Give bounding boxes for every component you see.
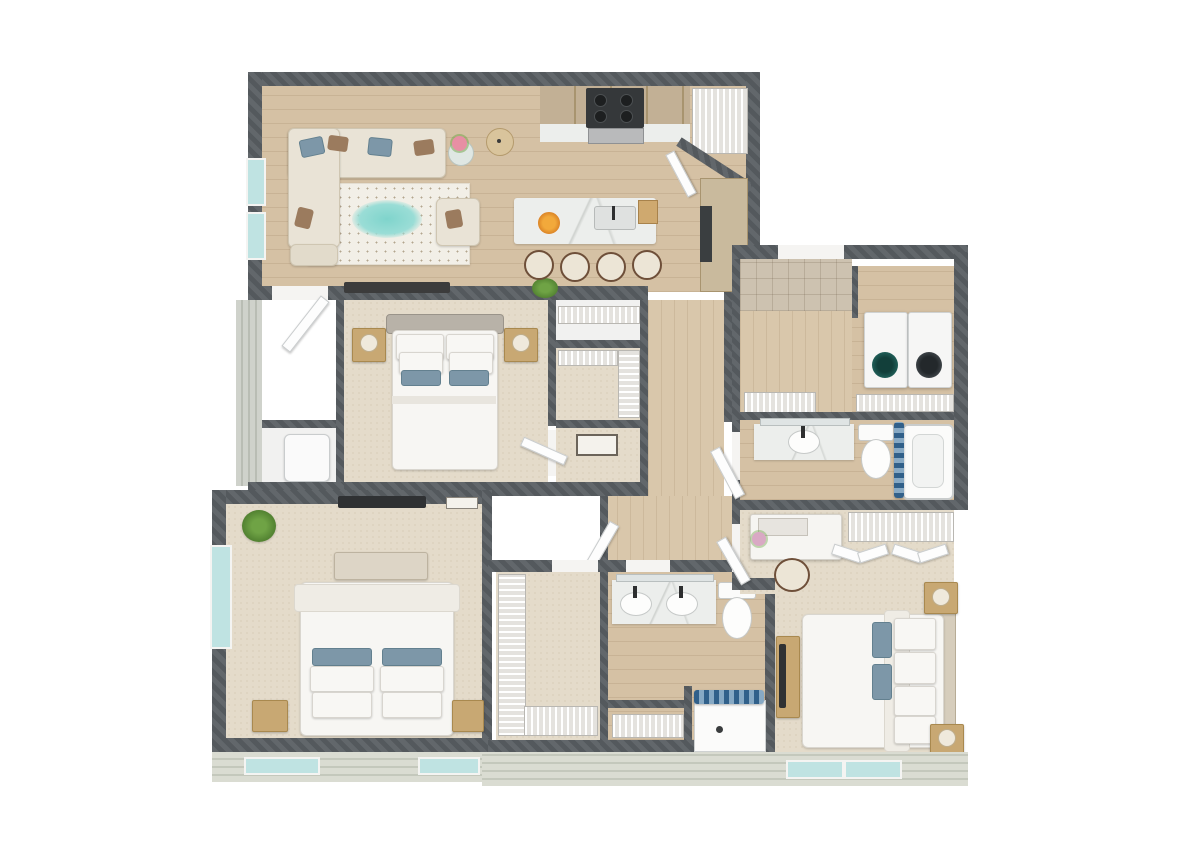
grocery-bag <box>638 200 658 224</box>
wall <box>262 420 336 428</box>
entry-floor <box>262 300 336 422</box>
burner <box>620 94 633 107</box>
wall <box>248 72 760 86</box>
floor-lamp-finial <box>497 139 501 143</box>
table-lamp <box>360 334 378 352</box>
table-lamp <box>512 334 530 352</box>
wire-shelf <box>558 350 618 366</box>
water-heater <box>284 434 330 482</box>
table-lamp <box>932 588 950 606</box>
vanity-flowers <box>752 532 766 546</box>
brown-pillow <box>327 135 349 153</box>
vanity-mirrors <box>616 574 714 582</box>
hall-linen-shelf <box>744 392 816 414</box>
wire-shelf <box>618 350 640 418</box>
blue-accent-pillow <box>449 370 489 386</box>
bar-stool <box>596 252 626 282</box>
closet-wire-shelf <box>848 512 954 542</box>
armchair-pillow <box>445 209 464 230</box>
burner <box>594 110 607 123</box>
potted-plant <box>242 510 276 542</box>
wall-art <box>576 434 618 456</box>
flower-vase-pink <box>452 136 467 151</box>
refrigerator-front <box>700 206 712 262</box>
faucet <box>679 586 683 598</box>
wire-shelf <box>558 306 640 324</box>
walk-in-shower <box>694 700 766 752</box>
window <box>844 760 902 779</box>
pillow <box>310 666 374 692</box>
bath-linen-shelf <box>612 714 684 738</box>
dryer-door <box>916 352 942 378</box>
laundry-wire-shelf <box>856 394 954 412</box>
dresser-tv <box>779 644 786 708</box>
bathtub-basin <box>912 434 944 488</box>
pillow <box>894 686 936 716</box>
pillow <box>312 692 372 718</box>
range-cooktop <box>586 88 644 128</box>
primary-bed-bench <box>334 552 428 580</box>
wall <box>608 700 686 708</box>
faucet <box>633 586 637 598</box>
media-console <box>344 282 450 293</box>
wall-mounted-tv <box>338 496 426 508</box>
blue-accent-pillow <box>312 648 372 666</box>
blue-accent-pillow <box>872 664 892 700</box>
window-tall <box>210 545 232 649</box>
wall <box>684 686 692 752</box>
window <box>786 760 844 779</box>
sofa-armrest <box>290 244 338 266</box>
wall <box>556 420 640 428</box>
wire-shelf <box>524 706 598 736</box>
entry-hall-floor <box>740 259 852 311</box>
island-sink <box>594 206 636 230</box>
entry-hall-doorway <box>778 245 844 259</box>
burner <box>620 110 633 123</box>
potted-plant <box>532 278 558 298</box>
table-lamp <box>938 729 956 747</box>
island-faucet <box>612 206 615 220</box>
window <box>246 158 266 206</box>
bathroom2-faucet <box>801 426 805 438</box>
bar-stool <box>632 250 662 280</box>
shower-curtain <box>694 690 764 704</box>
pillow <box>894 618 936 650</box>
window <box>246 212 266 260</box>
wall <box>954 252 968 508</box>
bar-stool <box>560 252 590 282</box>
window <box>418 757 480 775</box>
toilet-bowl <box>722 597 752 639</box>
pantry-wire-shelving <box>692 88 748 154</box>
wall <box>640 300 648 496</box>
blue-accent-pillow <box>382 648 442 666</box>
burner <box>594 94 607 107</box>
wall <box>212 738 490 752</box>
nightstand <box>452 700 484 732</box>
wall <box>732 500 968 510</box>
wall <box>852 266 858 318</box>
wire-shelf <box>498 574 526 736</box>
fruit-bowl <box>536 210 562 236</box>
wall <box>336 300 344 496</box>
vanity-mirror-tray <box>758 518 808 536</box>
pillow <box>382 692 442 718</box>
wall <box>488 740 608 752</box>
wall-art-small <box>446 497 478 509</box>
blue-accent-pillow <box>872 622 892 658</box>
blue-accent-pillow <box>401 370 441 386</box>
bathroom2-mirror <box>760 418 850 426</box>
exterior-siding-left <box>236 300 262 486</box>
washer-door <box>872 352 898 378</box>
shower-drain <box>716 726 723 733</box>
wall <box>548 300 556 426</box>
pillow <box>380 666 444 692</box>
vanity-chair <box>774 558 810 592</box>
duvet-fold <box>392 396 496 404</box>
primary-bath-door-opening <box>626 560 670 572</box>
window <box>244 757 320 775</box>
bar-stool <box>524 250 554 280</box>
oven-front <box>588 128 644 144</box>
nightstand <box>252 700 288 732</box>
rug-teal-accent <box>352 200 422 238</box>
closet-door-opening <box>552 560 598 572</box>
toilet-bowl <box>861 439 891 479</box>
blue-pillow <box>367 137 393 157</box>
duvet-fold <box>294 584 460 612</box>
wall <box>732 245 968 259</box>
bathtub-shower-curtain <box>894 422 904 498</box>
pillow <box>894 652 936 684</box>
wall <box>732 259 740 420</box>
wall <box>600 572 608 752</box>
brown-pillow <box>413 139 435 157</box>
floor-plan-canvas <box>0 0 1200 864</box>
wall <box>556 340 640 348</box>
